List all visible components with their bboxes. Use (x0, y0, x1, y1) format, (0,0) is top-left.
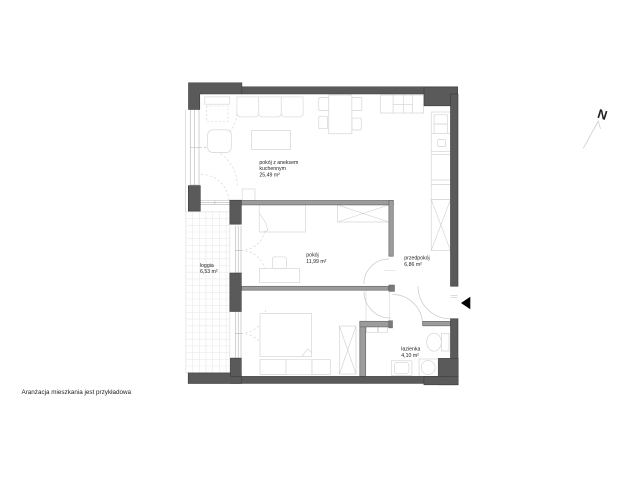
svg-text:loggia: loggia (200, 263, 214, 269)
svg-text:łazienka: łazienka (401, 347, 420, 353)
svg-text:11,99 m²: 11,99 m² (306, 259, 326, 265)
svg-text:4,10 m²: 4,10 m² (401, 353, 419, 359)
svg-text:przedpokój: przedpokój (404, 256, 429, 262)
svg-text:25,49 m²: 25,49 m² (259, 172, 280, 178)
svg-text:6,86 m²: 6,86 m² (404, 262, 422, 268)
svg-text:kuchennym: kuchennym (259, 166, 286, 172)
svg-text:6,53 m²: 6,53 m² (200, 269, 218, 275)
svg-text:pokój z aneksem: pokój z aneksem (259, 160, 298, 166)
svg-text:Aranżacja mieszkania jest przy: Aranżacja mieszkania jest przykładowa (22, 389, 132, 396)
svg-text:pokój: pokój (306, 253, 318, 259)
